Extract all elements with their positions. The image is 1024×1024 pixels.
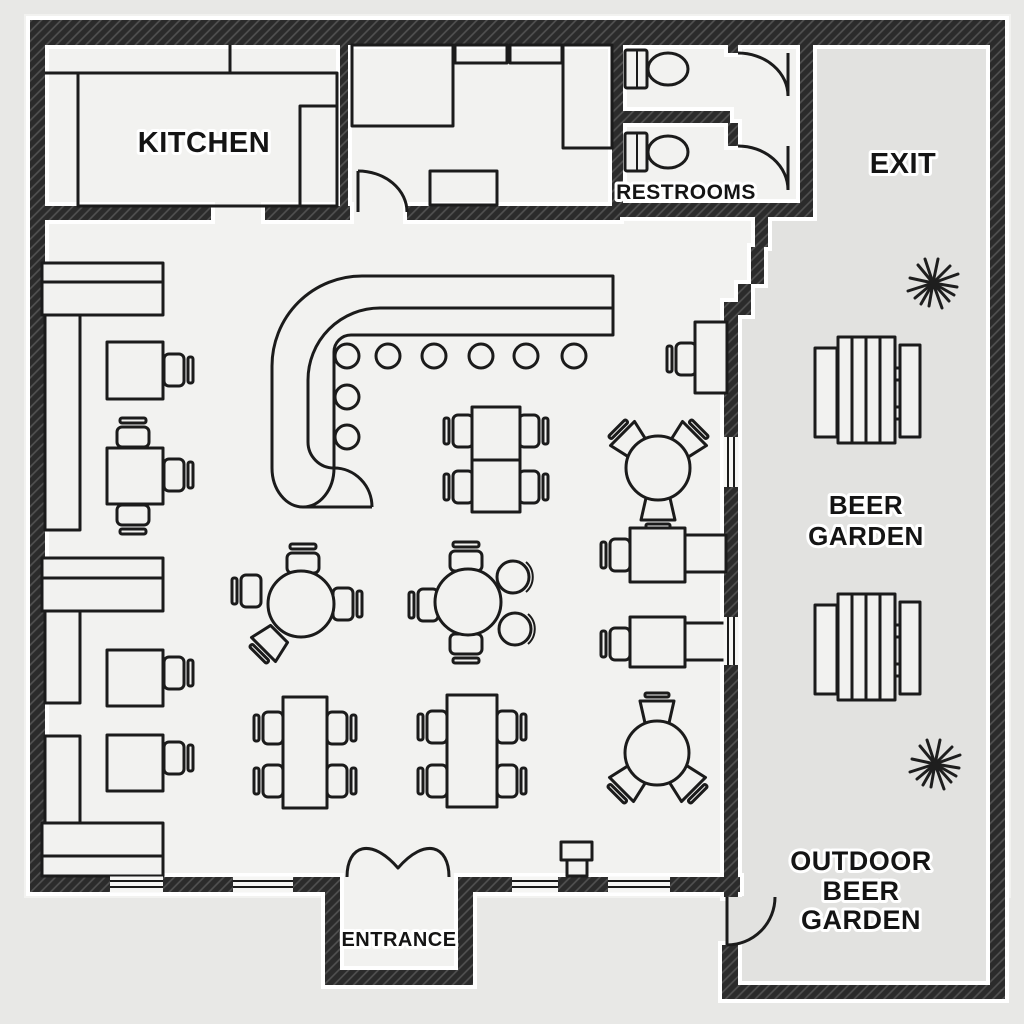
chair [117, 505, 149, 534]
window [233, 877, 293, 893]
toilet-icon [625, 50, 688, 88]
chair [164, 657, 193, 689]
outdoor-beer-garden-label-line3: GARDEN [801, 905, 921, 935]
restaurant-floor-plan: KITCHEN RESTROOMS EXIT BEER GARDEN OUTDO… [0, 0, 1024, 1024]
chair [418, 765, 447, 797]
chair [254, 712, 283, 744]
square-table [107, 650, 163, 706]
wall-bench [685, 623, 726, 660]
floor-plan-page: KITCHEN RESTROOMS EXIT BEER GARDEN OUTDO… [0, 0, 1024, 1024]
chair [497, 711, 526, 743]
chair [254, 765, 283, 797]
beer-garden-label-line2: GARDEN [808, 521, 924, 551]
window [110, 877, 163, 893]
window [608, 877, 670, 893]
chair [667, 343, 696, 375]
picnic-table [815, 594, 920, 700]
round-chair [497, 561, 529, 593]
round-table [435, 569, 501, 635]
host-stand [561, 842, 592, 876]
toilet-icon [625, 133, 688, 171]
chair [519, 471, 548, 503]
chair [327, 712, 356, 744]
chair [287, 544, 319, 573]
bar-stool [376, 344, 400, 368]
bar-stool [335, 385, 359, 409]
round-chair [499, 613, 531, 645]
picnic-table [815, 337, 920, 443]
square-table [630, 528, 685, 582]
square-table [107, 448, 163, 504]
restrooms-label: RESTROOMS [616, 181, 756, 204]
bar-stool [335, 425, 359, 449]
chair [444, 415, 473, 447]
chair [641, 498, 675, 528]
square-table [107, 342, 163, 399]
bar-stool [562, 344, 586, 368]
chair [444, 471, 473, 503]
exit-label: EXIT [870, 148, 936, 180]
chair [327, 765, 356, 797]
bar-stool [335, 344, 359, 368]
window [512, 877, 558, 893]
kitchen-label: KITCHEN [138, 127, 270, 159]
square-table [107, 735, 163, 791]
bar-stool [469, 344, 493, 368]
chair [418, 711, 447, 743]
round-table [626, 436, 690, 500]
chair [519, 415, 548, 447]
bar-stool [422, 344, 446, 368]
chair [232, 575, 261, 607]
entrance-floor [330, 877, 468, 977]
outdoor-beer-garden-label-line2: BEER [822, 876, 899, 906]
outdoor-beer-garden-label-line1: OUTDOOR [790, 846, 932, 876]
rect-table [447, 695, 497, 807]
window [724, 437, 739, 487]
chair [450, 542, 482, 571]
rect-table [283, 697, 327, 808]
chair [117, 418, 149, 447]
square-table [630, 617, 685, 667]
chair [601, 539, 630, 571]
beer-garden-label-line1: BEER [829, 490, 903, 520]
entrance-label: ENTRANCE [341, 929, 456, 951]
round-table [625, 721, 689, 785]
round-table [268, 571, 334, 637]
wall-bench [685, 535, 726, 572]
chair [164, 354, 193, 386]
chair [164, 742, 193, 774]
chair [333, 588, 362, 620]
chair [497, 765, 526, 797]
chair [640, 693, 674, 723]
chair [450, 634, 482, 663]
window [724, 617, 739, 665]
wall-table [695, 322, 727, 393]
bar-stool [514, 344, 538, 368]
chair [601, 628, 630, 660]
chair [164, 459, 193, 491]
